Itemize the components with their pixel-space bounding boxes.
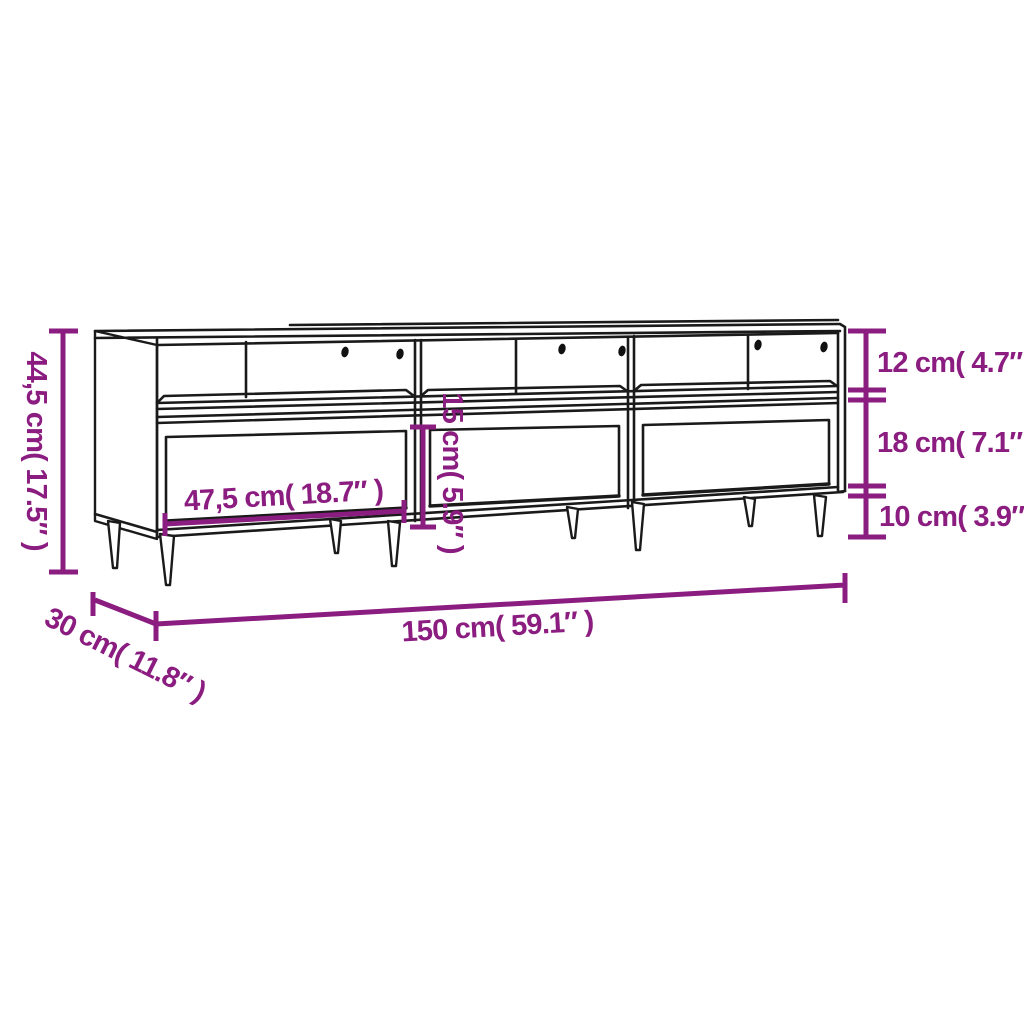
leg (388, 521, 400, 566)
leg (330, 519, 341, 553)
top-compartment-height-label: 12 cm( 4.7″ ) (877, 347, 1024, 379)
cable-hole (819, 341, 828, 353)
overall-width-label: 150 cm( 59.1″ ) (401, 606, 595, 649)
dimension-overall-height: 44,5 cm( 17.5″ ) (20, 331, 78, 572)
cable-hole (753, 339, 762, 351)
cable-holes (340, 339, 828, 360)
cabinet-left-side-panel (95, 331, 157, 539)
leg (567, 507, 578, 538)
tv-stand-dimension-diagram: 44,5 cm( 17.5″ ) 12 cm( 4.7″ ) 18 cm( 7.… (0, 0, 1024, 1024)
dimension-diagram-page: 44,5 cm( 17.5″ ) 12 cm( 4.7″ ) 18 cm( 7.… (0, 0, 1024, 1024)
cable-hole (340, 346, 349, 358)
leg (632, 502, 644, 550)
overall-height-label: 44,5 cm( 17.5″ ) (20, 351, 52, 551)
drawer-front (643, 420, 829, 495)
cable-hole (617, 345, 626, 357)
dimension-right-stack: 12 cm( 4.7″ ) 18 cm( 7.1″ ) 10 cm( 3.9″ … (848, 331, 1024, 537)
dimension-line (49, 331, 78, 572)
leg (744, 497, 755, 526)
leg (814, 495, 826, 536)
drawer-front-height-label: 18 cm( 7.1″ ) (877, 427, 1024, 459)
dimension-line (93, 592, 156, 624)
drawer-opening-height-label: 15 cm( 5.9″ ) (436, 392, 468, 554)
overall-depth-label: 30 cm( 11.8″ ) (39, 602, 210, 709)
dimension-overall-width: 150 cm( 59.1″ ) (156, 573, 845, 649)
dimension-overall-depth: 30 cm( 11.8″ ) (39, 592, 210, 708)
leg (160, 534, 174, 585)
leg-height-label: 10 cm( 3.9″ ) (879, 501, 1024, 533)
cable-hole (557, 343, 566, 355)
cable-hole (395, 348, 404, 360)
leg (108, 521, 120, 568)
tv-stand-drawing (95, 320, 845, 585)
